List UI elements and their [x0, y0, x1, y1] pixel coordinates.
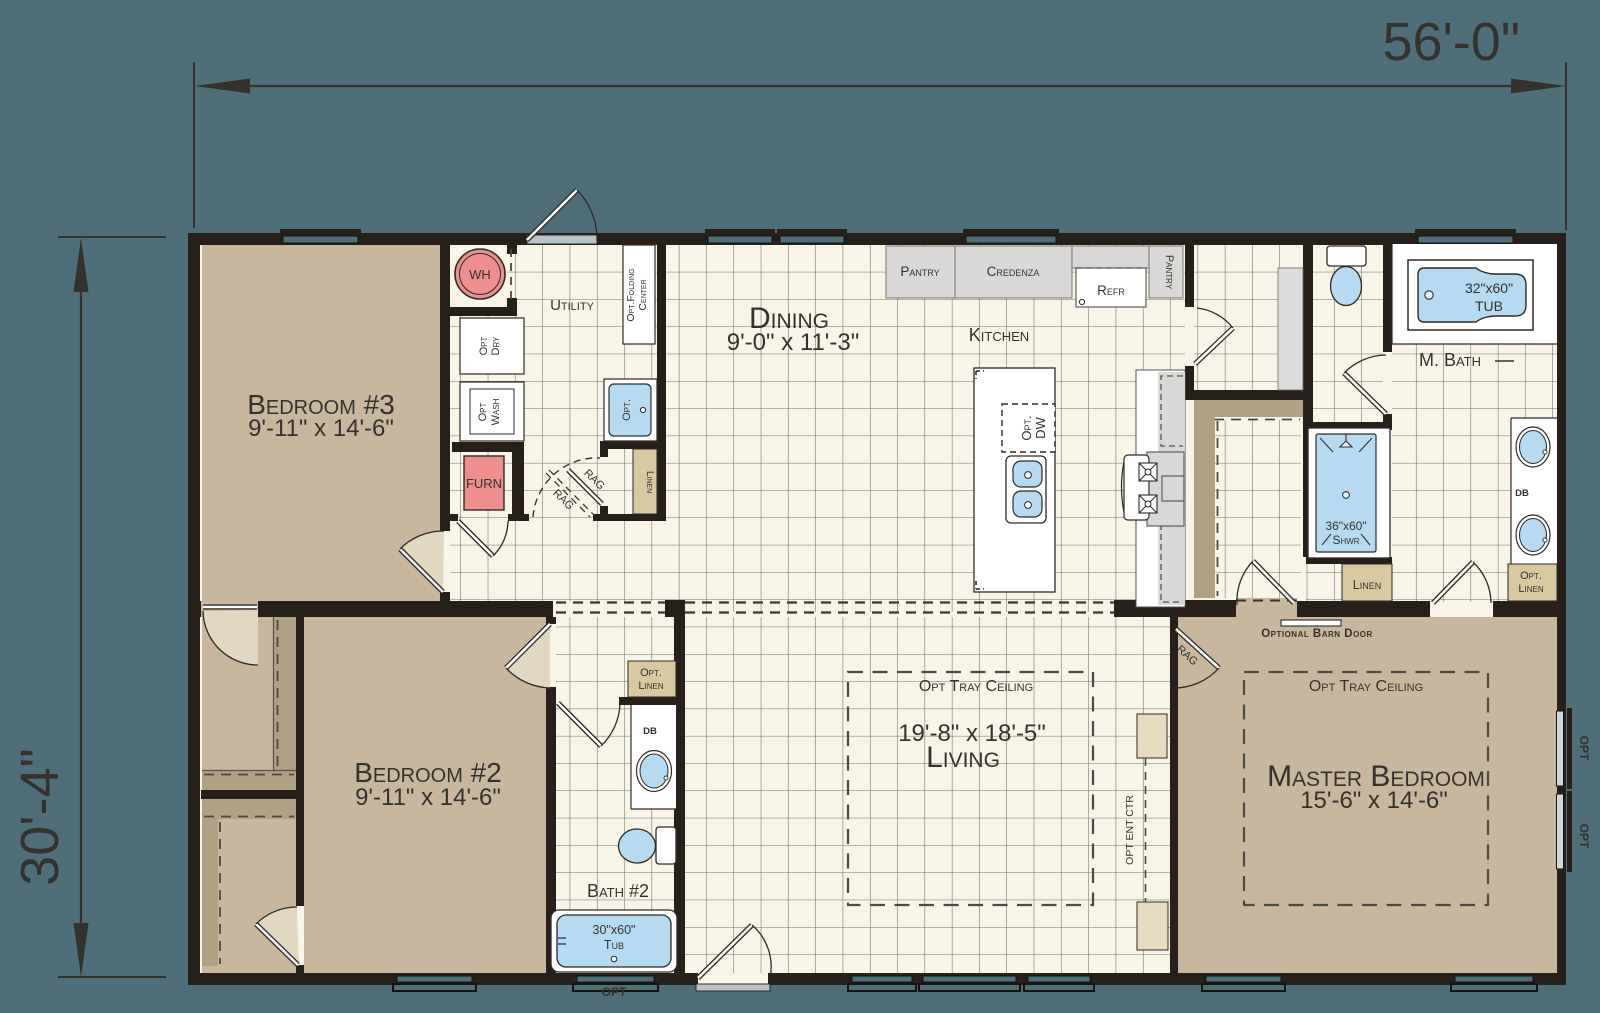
- svg-text:56'-0": 56'-0": [1382, 12, 1520, 72]
- svg-text:FURN: FURN: [466, 476, 502, 491]
- svg-text:Bath #2: Bath #2: [587, 881, 649, 901]
- svg-text:Center: Center: [637, 279, 649, 310]
- svg-text:Refr: Refr: [1097, 283, 1125, 298]
- svg-text:30"x60": 30"x60": [593, 923, 636, 937]
- svg-text:Tub: Tub: [604, 938, 624, 952]
- svg-text:OPT: OPT: [1577, 736, 1591, 761]
- svg-text:Kitchen: Kitchen: [969, 325, 1029, 345]
- svg-text:Opt: Opt: [477, 402, 489, 421]
- svg-text:M. Bath: M. Bath: [1419, 350, 1481, 370]
- svg-text:9'-11" x 14'-6": 9'-11" x 14'-6": [355, 784, 501, 811]
- svg-text:Opt.: Opt.: [640, 667, 662, 679]
- svg-text:DB: DB: [643, 726, 657, 737]
- svg-text:OPT ENT CTR: OPT ENT CTR: [1124, 795, 1136, 865]
- svg-text:9'-0" x 11'-3": 9'-0" x 11'-3": [727, 329, 859, 356]
- svg-text:Linen: Linen: [1518, 583, 1543, 595]
- svg-text:Dry: Dry: [490, 336, 502, 356]
- svg-text:WH: WH: [469, 267, 491, 282]
- svg-text:Opt Tray Ceiling: Opt Tray Ceiling: [1309, 678, 1423, 695]
- svg-text:Optional Barn Door: Optional Barn Door: [1261, 628, 1373, 640]
- svg-text:Opt.Folding: Opt.Folding: [625, 268, 637, 321]
- svg-text:DB: DB: [1515, 488, 1529, 499]
- svg-text:Opt.: Opt.: [1520, 570, 1542, 582]
- svg-text:Utility: Utility: [550, 297, 595, 314]
- svg-text:Credenza: Credenza: [987, 264, 1040, 279]
- svg-text:Wash: Wash: [490, 398, 502, 425]
- svg-text:36"x60": 36"x60": [1325, 519, 1366, 533]
- svg-text:32"x60": 32"x60": [1465, 280, 1513, 296]
- svg-text:TUB: TUB: [1475, 298, 1503, 314]
- svg-text:9'-11" x 14'-6": 9'-11" x 14'-6": [248, 415, 394, 442]
- svg-text:OPT: OPT: [602, 985, 627, 999]
- svg-text:30'-4": 30'-4": [10, 748, 70, 886]
- svg-text:Opt Tray Ceiling: Opt Tray Ceiling: [919, 678, 1033, 695]
- svg-text:Pantry: Pantry: [1163, 255, 1175, 290]
- svg-text:Opt.: Opt.: [621, 399, 633, 421]
- svg-text:Shwr: Shwr: [1332, 533, 1359, 547]
- svg-text:Living: Living: [926, 741, 1000, 774]
- svg-text:Linen: Linen: [644, 471, 655, 493]
- svg-text:15'-6" x 14'-6": 15'-6" x 14'-6": [1300, 787, 1448, 814]
- svg-text:Linen: Linen: [638, 680, 663, 692]
- svg-text:OPT: OPT: [1577, 824, 1591, 849]
- svg-text:Linen: Linen: [1353, 578, 1381, 592]
- svg-text:Pantry: Pantry: [900, 264, 939, 279]
- svg-text:Opt.: Opt.: [1019, 415, 1034, 440]
- svg-text:DW: DW: [1033, 416, 1048, 438]
- svg-text:Opt: Opt: [478, 336, 490, 355]
